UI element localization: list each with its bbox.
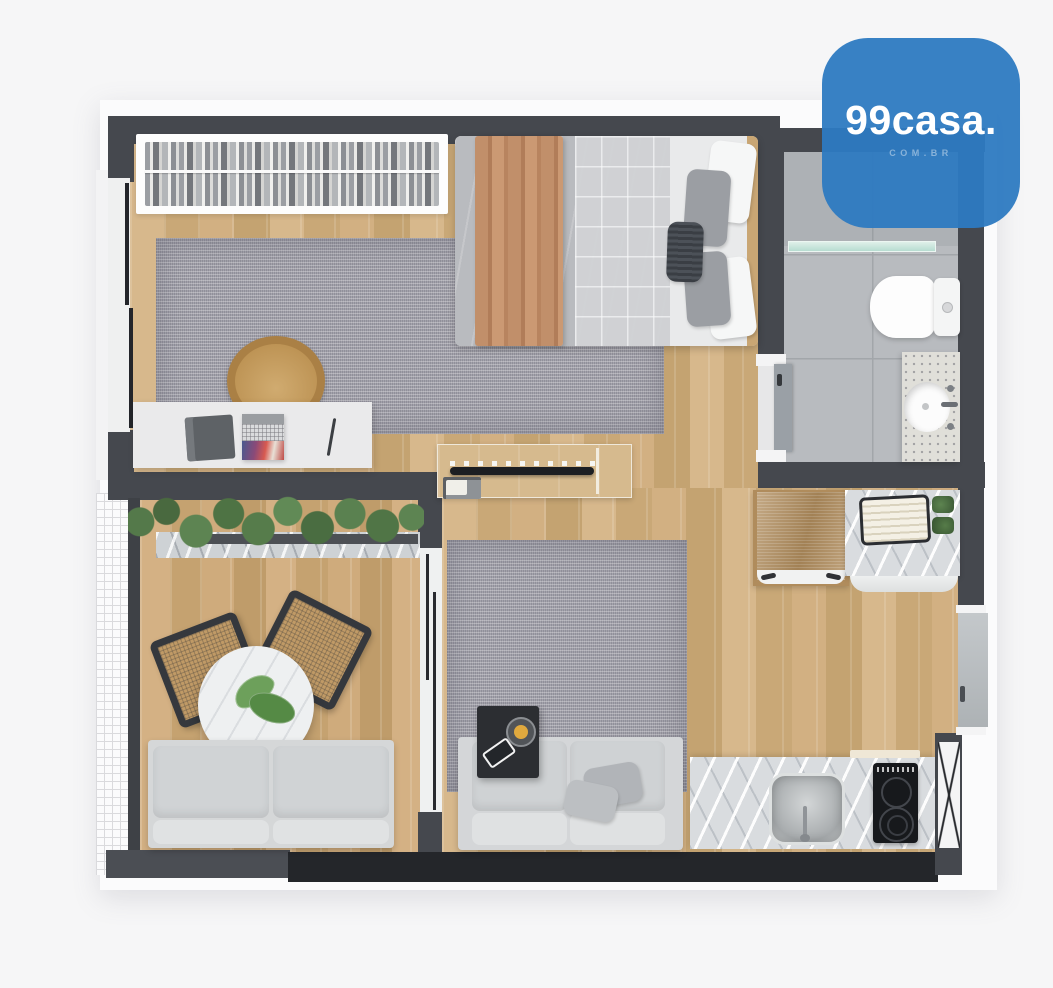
toilet-bowl — [870, 276, 936, 338]
tv-console-divider — [596, 448, 599, 494]
bedroom-window-glass-1 — [125, 183, 129, 305]
desk-notebook — [185, 414, 236, 461]
wall-corner-top-left — [108, 142, 134, 182]
shower-glass-shelf — [788, 241, 936, 252]
coffee-cup-drink — [514, 725, 528, 739]
wall-bathroom-left-upper — [758, 150, 784, 356]
tv-console-decor-books — [443, 477, 481, 499]
bathroom-door-jamb-bottom — [756, 450, 786, 462]
balcony-sliding-door-glass-1 — [426, 554, 429, 680]
fridge-top — [757, 492, 845, 580]
brand-logo-text: 99casa. — [845, 100, 997, 141]
wall-partition-stub-bottom — [418, 812, 442, 852]
entry-door-handle — [960, 686, 965, 702]
closet-hanging-clothes — [145, 142, 439, 206]
balcony-sofa-front-left — [153, 820, 269, 844]
cooktop-burner-small — [881, 777, 912, 808]
herb-pot-2 — [932, 517, 954, 534]
brand-logo-badge: 99casa. COM.BR — [822, 38, 1020, 228]
closet-rail — [145, 170, 439, 173]
counter-appliance-front — [850, 576, 958, 592]
entry-jamb-bottom — [956, 727, 986, 735]
entry-door-panel — [958, 613, 988, 727]
balcony-plants — [128, 494, 424, 552]
wall-corner-left-mid — [108, 430, 134, 474]
laptop-keyboard — [242, 424, 284, 441]
entry-door-swing-panel — [938, 742, 960, 848]
fridge-cabinet — [753, 490, 849, 586]
bed-pillow-dark — [666, 221, 704, 282]
bed — [455, 136, 758, 346]
wall-living-bottom — [288, 852, 938, 882]
trellis-balcony-edge — [96, 493, 130, 875]
herb-pot-1 — [932, 496, 954, 513]
bathroom-faucet — [941, 402, 958, 407]
wall-kitchen-right-upper — [958, 488, 984, 606]
wall-bathroom-bottom — [758, 462, 985, 488]
kitchen-sink — [769, 773, 845, 845]
laptop-screen — [242, 441, 284, 460]
balcony-sofa-seat-left — [153, 746, 269, 818]
cooktop — [873, 763, 918, 843]
balcony-sofa-seat-right — [273, 746, 389, 818]
cutting-board — [859, 494, 931, 546]
balcony-sliding-door-frame — [420, 548, 442, 812]
living-sofa-front-left — [472, 813, 567, 845]
tv-screen — [450, 467, 594, 475]
wall-balcony-bottom — [106, 850, 290, 878]
balcony-sliding-door-glass-2 — [433, 592, 436, 810]
toilet-flush-button — [942, 302, 953, 313]
left-window-sill — [96, 170, 108, 480]
faucet-handle-bottom — [947, 423, 954, 430]
closet — [136, 134, 448, 214]
bathroom-door-handle — [777, 374, 782, 386]
kitchen-faucet-base — [800, 834, 810, 842]
floor-plan-canvas: 99casa. COM.BR — [0, 0, 1053, 988]
sink-drain — [922, 403, 929, 410]
cooktop-controls — [877, 767, 914, 772]
balcony-sofa — [148, 740, 394, 848]
faucet-handle-top — [947, 385, 954, 392]
brand-logo-domain: COM.BR — [889, 148, 953, 158]
entry-jamb-top — [956, 605, 986, 613]
balcony-sofa-front-right — [273, 820, 389, 844]
cooktop-burner-large — [879, 807, 914, 842]
kitchen-shelf — [850, 750, 920, 758]
desk-laptop — [242, 414, 284, 460]
cooktop-burner-inner-ring — [887, 815, 908, 836]
tv-led-strip — [450, 461, 600, 466]
bed-tan-blanket — [475, 136, 563, 346]
laptop-hinge — [242, 414, 284, 424]
